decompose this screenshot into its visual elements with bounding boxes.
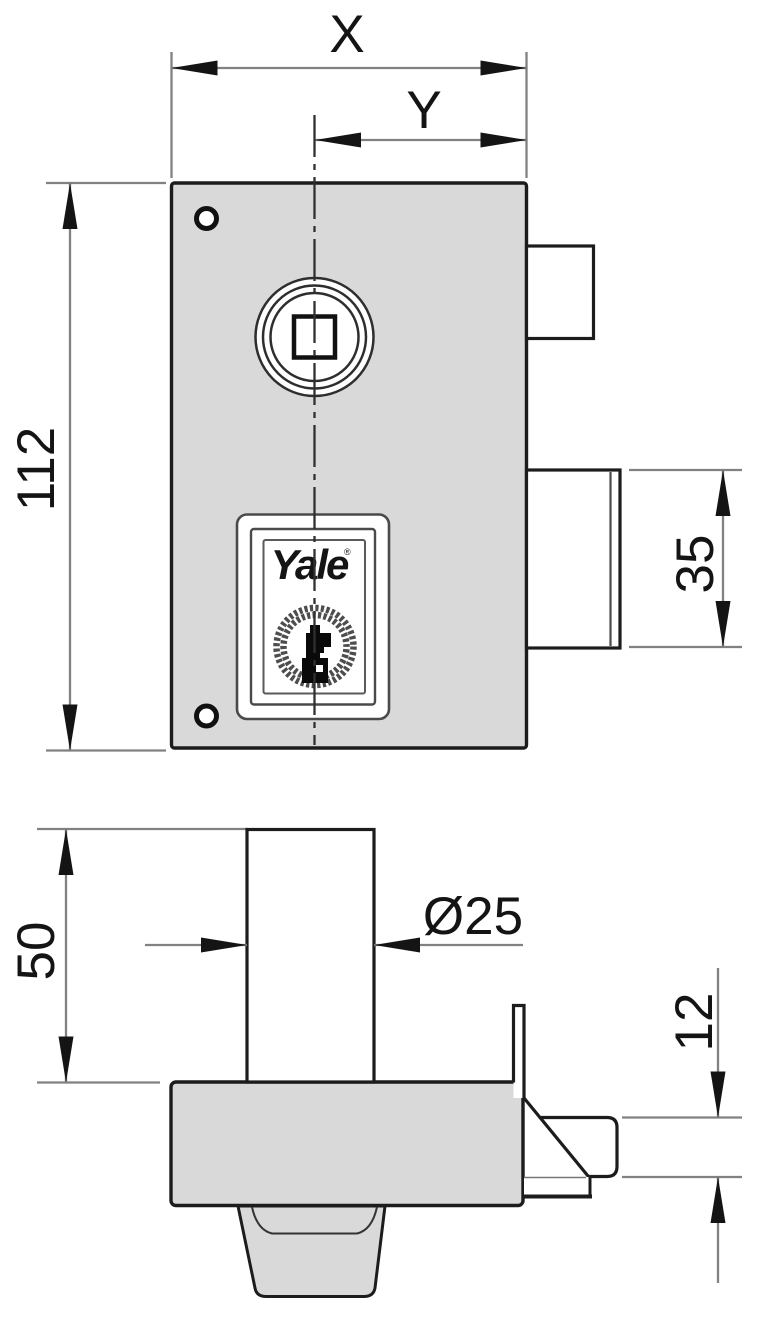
- svg-text:Yale: Yale: [271, 541, 349, 588]
- svg-text:®: ®: [344, 547, 351, 557]
- svg-text:112: 112: [7, 427, 66, 512]
- svg-text:Ø25: Ø25: [423, 887, 523, 946]
- svg-text:12: 12: [665, 993, 724, 1052]
- svg-text:50: 50: [7, 922, 66, 981]
- svg-text:X: X: [329, 5, 364, 64]
- svg-text:35: 35: [666, 535, 725, 594]
- svg-text:Y: Y: [406, 81, 441, 140]
